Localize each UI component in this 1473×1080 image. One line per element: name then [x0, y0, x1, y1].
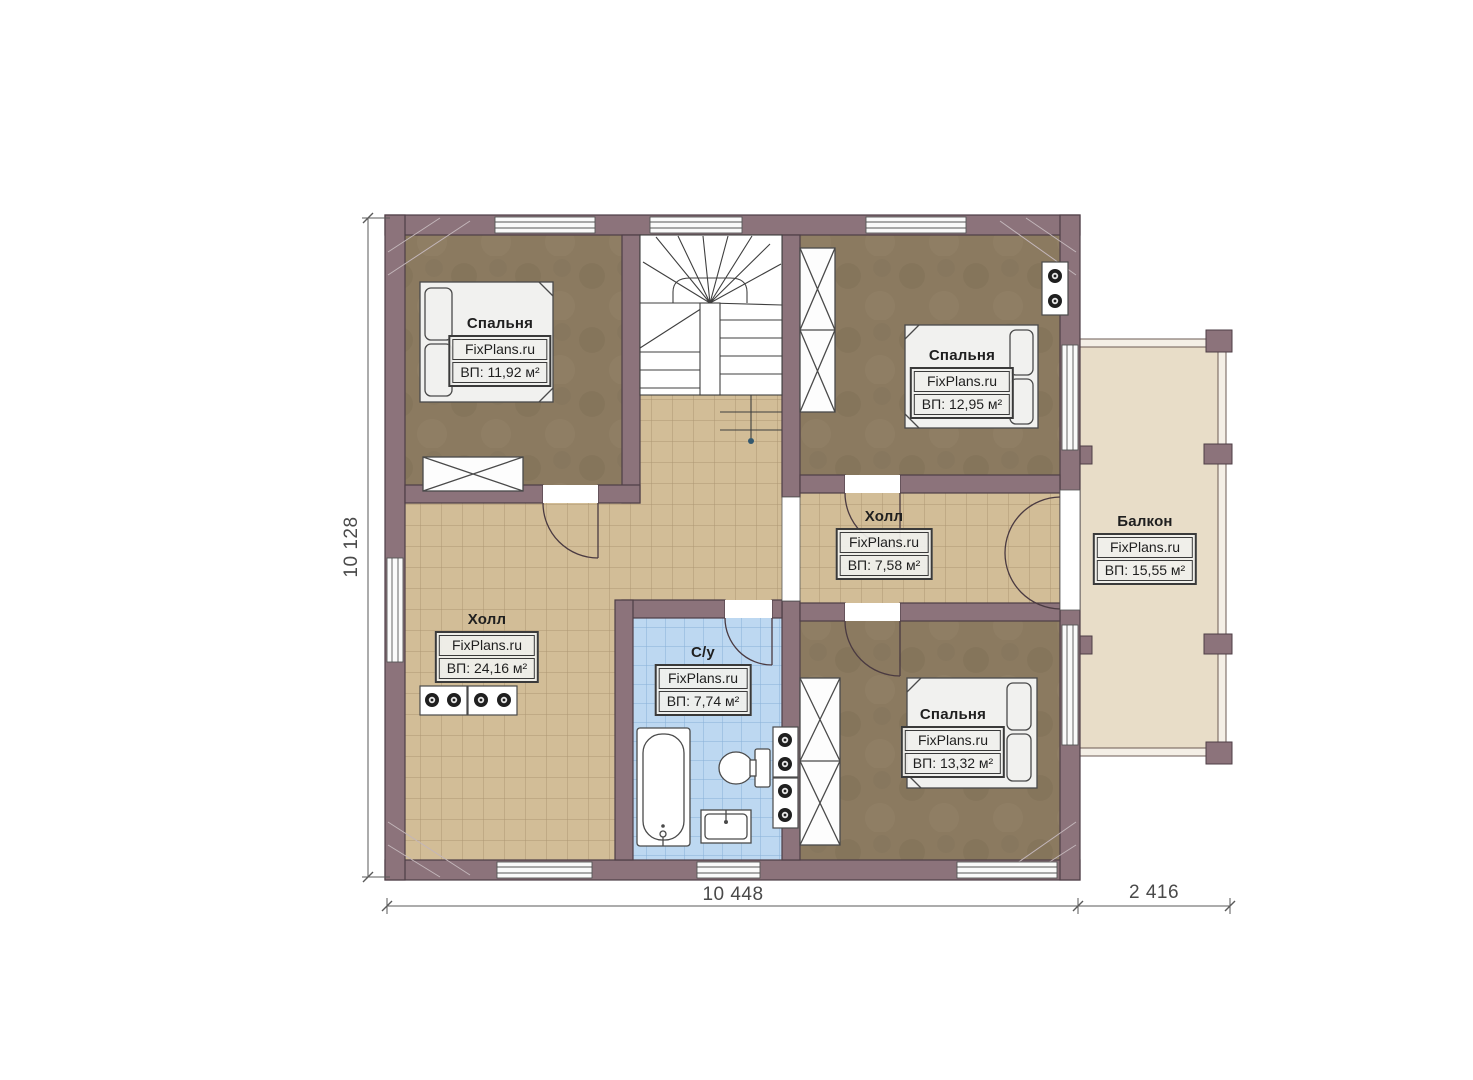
room-area: ВП: 7,58 м²: [840, 555, 929, 576]
floor-corridor: [640, 395, 782, 503]
wall-bathroom-left: [615, 600, 633, 860]
vent-box: [420, 686, 467, 715]
room-info-box: FixPlans.ru ВП: 24,16 м²: [435, 631, 539, 683]
window: [495, 217, 595, 233]
wall-bedroom1-right: [622, 235, 640, 503]
window: [697, 862, 760, 878]
room-info-box: FixPlans.ru ВП: 11,92 м²: [448, 335, 551, 387]
bathtub-icon: [637, 728, 690, 846]
room-info-box: FixPlans.ru ВП: 15,55 м²: [1093, 533, 1197, 585]
room-area: ВП: 24,16 м²: [439, 658, 535, 679]
wardrobe-icon: [800, 678, 840, 845]
brand-watermark: FixPlans.ru: [439, 635, 535, 656]
window: [1062, 625, 1078, 745]
floor-plan-canvas: Спальня FixPlans.ru ВП: 11,92 м² Спальня…: [0, 0, 1473, 1080]
window: [1062, 345, 1078, 450]
toilet-icon: [719, 749, 770, 787]
window: [866, 217, 966, 233]
room-info-box: FixPlans.ru ВП: 13,32 м²: [901, 726, 1005, 778]
window: [957, 862, 1057, 878]
wall-bedroom3-top-a: [800, 603, 845, 621]
room-name: С/у: [655, 644, 752, 661]
room-name: Спальня: [901, 706, 1005, 723]
stair-newel: [700, 303, 720, 395]
floor-plan-drawing: [0, 0, 1473, 1080]
brand-watermark: FixPlans.ru: [914, 371, 1010, 392]
wall-center-vertical-upper: [782, 235, 800, 497]
balcony-door-opening: [1060, 490, 1080, 610]
room-label-hall-small: Холл FixPlans.ru ВП: 7,58 м²: [836, 508, 933, 580]
room-name: Спальня: [448, 315, 551, 332]
wardrobe-icon: [800, 248, 835, 412]
brand-watermark: FixPlans.ru: [659, 668, 748, 689]
dimension-height-left: 10 128: [341, 516, 363, 577]
cased-opening-hall: [782, 497, 800, 601]
wall-bathroom-top-a: [622, 600, 725, 618]
wall-bathroom-top-b: [772, 600, 782, 618]
dimension-width-balcony: 2 416: [1129, 882, 1179, 904]
room-area: ВП: 12,95 м²: [914, 394, 1010, 415]
vent-box: [468, 686, 517, 715]
room-label-bedroom-top-right: Спальня FixPlans.ru ВП: 12,95 м²: [910, 347, 1014, 419]
brand-watermark: FixPlans.ru: [840, 532, 929, 553]
brand-watermark: FixPlans.ru: [452, 339, 547, 360]
vent-box: [773, 778, 798, 828]
vent-box: [1042, 262, 1068, 315]
window: [650, 217, 742, 233]
wall-bedroom3-top-b: [900, 603, 1060, 621]
room-area: ВП: 11,92 м²: [452, 362, 547, 383]
wall-bedroom2-bottom-b: [900, 475, 1060, 493]
brand-watermark: FixPlans.ru: [905, 730, 1001, 751]
room-name: Спальня: [910, 347, 1014, 364]
room-info-box: FixPlans.ru ВП: 12,95 м²: [910, 367, 1014, 419]
wall-bedroom1-bottom-b: [598, 485, 640, 503]
stair-direction-dot: [748, 438, 754, 444]
wardrobe-icon: [423, 457, 523, 491]
room-info-box: FixPlans.ru ВП: 7,74 м²: [655, 664, 752, 716]
room-label-balcony: Балкон FixPlans.ru ВП: 15,55 м²: [1093, 513, 1197, 585]
dimension-width-bottom: 10 448: [702, 884, 763, 906]
room-label-hall-main: Холл FixPlans.ru ВП: 24,16 м²: [435, 611, 539, 683]
room-label-bedroom-top-left: Спальня FixPlans.ru ВП: 11,92 м²: [448, 315, 551, 387]
window: [497, 862, 592, 878]
room-name: Холл: [435, 611, 539, 628]
room-area: ВП: 13,32 м²: [905, 753, 1001, 774]
room-name: Холл: [836, 508, 933, 525]
vent-box: [773, 727, 798, 777]
room-info-box: FixPlans.ru ВП: 7,58 м²: [836, 528, 933, 580]
room-name: Балкон: [1093, 513, 1197, 530]
room-label-bathroom: С/у FixPlans.ru ВП: 7,74 м²: [655, 644, 752, 716]
room-label-bedroom-bottom-right: Спальня FixPlans.ru ВП: 13,32 м²: [901, 706, 1005, 778]
window: [387, 558, 403, 662]
room-area: ВП: 15,55 м²: [1097, 560, 1193, 581]
sink-icon: [701, 810, 751, 843]
wall-bedroom2-bottom-a: [800, 475, 845, 493]
wall-outer-left: [385, 215, 405, 880]
room-area: ВП: 7,74 м²: [659, 691, 748, 712]
brand-watermark: FixPlans.ru: [1097, 537, 1193, 558]
